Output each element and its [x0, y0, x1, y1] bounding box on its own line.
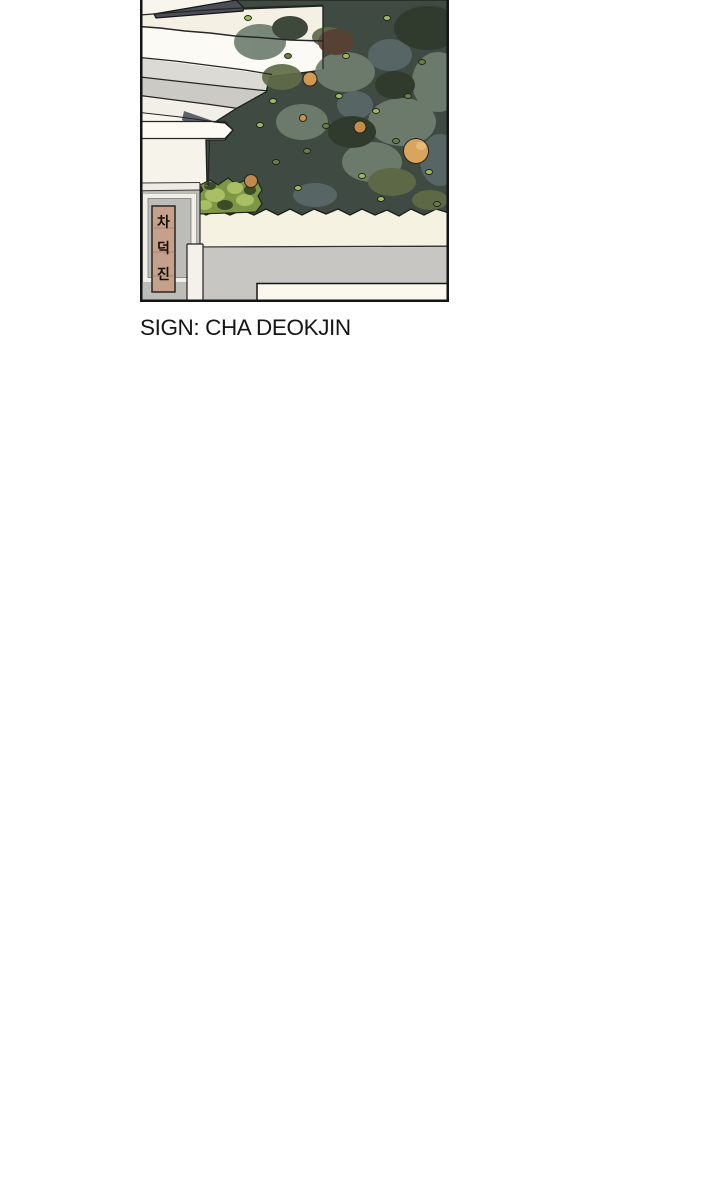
sign-character-3: 진 [157, 266, 170, 283]
sign-character-1: 차 [157, 215, 170, 231]
panel-artwork: 차 덕 진 [140, 0, 449, 302]
fruit-highlight [416, 142, 426, 150]
white-step [257, 284, 447, 303]
persimmon-fruit [354, 121, 366, 133]
beam [140, 122, 233, 139]
sign-character-2: 덕 [157, 240, 170, 257]
persimmon-fruit [303, 72, 317, 86]
translation-caption: SIGN: CHA DEOKJIN [140, 315, 351, 341]
white-pillar [187, 244, 203, 302]
comic-panel: 차 덕 진 [140, 0, 449, 302]
persimmon-fruit [404, 139, 429, 164]
white-wall [140, 139, 210, 186]
lower-wall [195, 246, 449, 302]
persimmon-fruit [300, 115, 307, 122]
nameplate-sign: 차 덕 진 [152, 206, 175, 292]
persimmon-fruit [245, 175, 258, 188]
page: 차 덕 진 SIGN: CHA DEOKJIN [0, 0, 720, 1198]
wall-seam-line [195, 246, 449, 247]
